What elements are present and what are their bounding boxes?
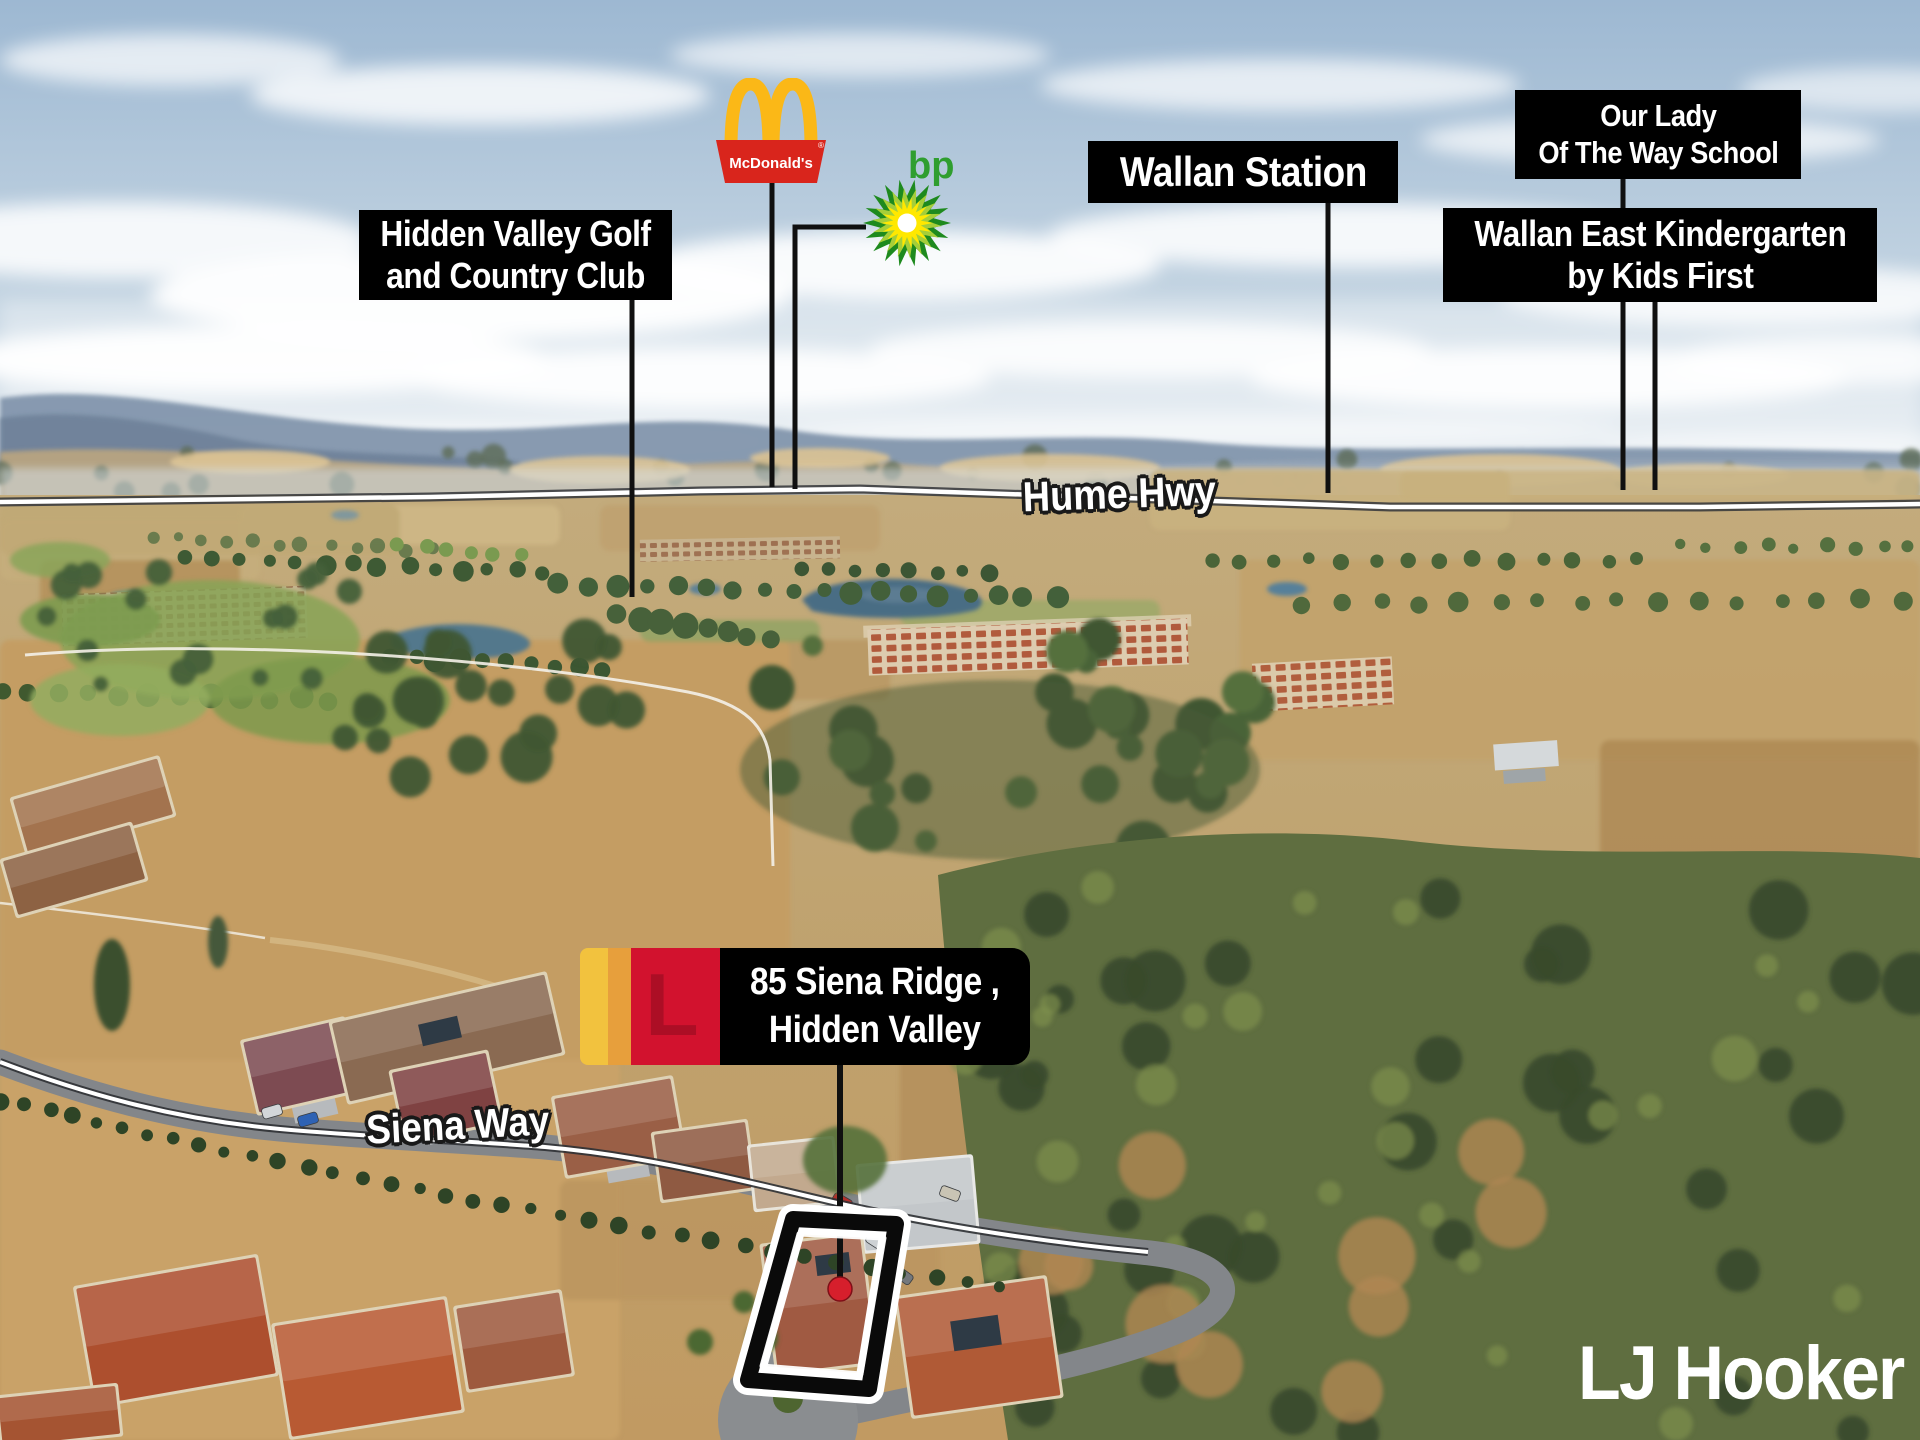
ljhooker-stripe-gold [580,948,608,1065]
ljhooker-stripe-amber [608,948,631,1065]
mcdonalds-logo: McDonald's ® [713,78,829,188]
property-address-label: L 85 Siena Ridge , Hidden Valley [580,948,1030,1065]
siena-way-road-line [0,1062,1148,1252]
bp-helios-icon [863,180,951,267]
property-address-line: 85 Siena Ridge , [750,959,999,1007]
property-marker-dot [828,1277,852,1301]
property-boundary-outline [748,1219,896,1389]
road-label-siena-way: Siena Way [365,1097,550,1154]
leader-lines [632,178,1655,1287]
label-wallan-east-kindergarten: Wallan East Kindergarten by Kids First [1443,208,1877,302]
label-our-lady-of-the-way-school: Our Lady Of The Way School [1515,90,1801,179]
property-address-line: Hidden Valley [750,1007,999,1055]
label-line: Hidden Valley Golf [380,213,650,255]
annotated-aerial-map: Hidden Valley Golf and Country Club Wall… [0,0,1920,1440]
hume-hwy-road-line [0,489,1920,507]
ljhooker-monogram-watermark: L [645,954,699,1056]
property-address-text-box: 85 Siena Ridge , Hidden Valley [720,948,1030,1065]
mcdonalds-sign-text: McDonald's [729,155,813,172]
golden-arches-icon [731,84,811,148]
ljhooker-stripe-red: L [631,948,720,1065]
registered-mark-icon: ® [818,141,824,150]
label-line: Wallan Station [1119,147,1366,196]
label-line: by Kids First [1474,255,1846,297]
lj-hooker-wordmark: LJ Hooker [1578,1330,1903,1417]
label-line: Our Lady [1538,98,1778,134]
bp-logo: bp [858,140,958,272]
road-label-hume-hwy: Hume Hwy [1022,467,1217,522]
bp-wordmark: bp [908,145,954,187]
leader-bp [795,227,866,489]
label-hidden-valley-golf-club: Hidden Valley Golf and Country Club [359,210,672,300]
label-wallan-station: Wallan Station [1088,141,1398,203]
label-line: Of The Way School [1538,135,1778,171]
label-line: Wallan East Kindergarten [1474,213,1846,255]
label-line: and Country Club [380,255,650,297]
